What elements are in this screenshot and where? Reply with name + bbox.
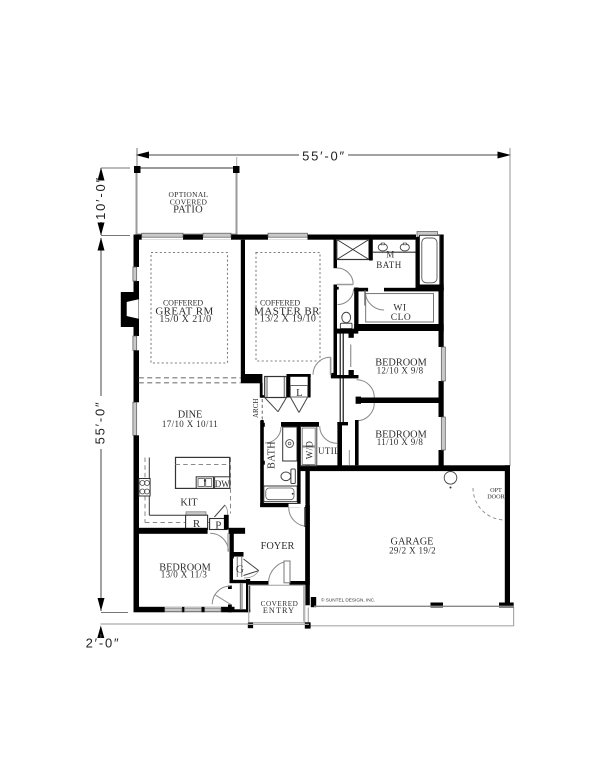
svg-text:L: L xyxy=(296,388,302,399)
svg-text:13/0 X 11/3: 13/0 X 11/3 xyxy=(161,570,208,580)
svg-text:13/2 X 19/10: 13/2 X 19/10 xyxy=(260,314,316,325)
svg-text:PATIO: PATIO xyxy=(173,205,203,216)
svg-text:W/D: W/D xyxy=(305,441,315,460)
svg-text:BATH: BATH xyxy=(376,260,402,270)
svg-text:© SUNTEL DESIGN, INC.: © SUNTEL DESIGN, INC. xyxy=(321,596,375,602)
svg-text:2′-0″: 2′-0″ xyxy=(86,636,121,651)
svg-text:11/10 X 9/8: 11/10 X 9/8 xyxy=(377,437,424,447)
svg-text:ARCH: ARCH xyxy=(252,399,260,418)
svg-text:DW: DW xyxy=(215,479,230,489)
svg-text:29/2 X 19/2: 29/2 X 19/2 xyxy=(389,546,436,556)
svg-text:FOYER: FOYER xyxy=(261,541,295,552)
svg-text:DOOR: DOOR xyxy=(487,493,505,500)
svg-text:55′-0″: 55′-0″ xyxy=(93,401,108,445)
svg-text:WI: WI xyxy=(393,304,406,314)
svg-text:12/10 X 9/8: 12/10 X 9/8 xyxy=(377,366,424,376)
svg-text:CLO: CLO xyxy=(391,313,412,323)
svg-text:M: M xyxy=(386,250,395,260)
svg-text:10′-0″: 10′-0″ xyxy=(93,176,108,220)
svg-text:G: G xyxy=(236,564,244,576)
svg-text:UTIL: UTIL xyxy=(318,446,340,456)
svg-text:P: P xyxy=(215,520,221,532)
svg-text:17/10 X 10/11: 17/10 X 10/11 xyxy=(162,419,218,429)
svg-text:ENTRY: ENTRY xyxy=(263,606,295,615)
svg-text:BATH: BATH xyxy=(267,441,278,469)
svg-text:55′-0″: 55′-0″ xyxy=(302,149,346,164)
svg-text:15/0 X 21/0: 15/0 X 21/0 xyxy=(159,314,211,325)
svg-text:KIT: KIT xyxy=(180,498,198,509)
